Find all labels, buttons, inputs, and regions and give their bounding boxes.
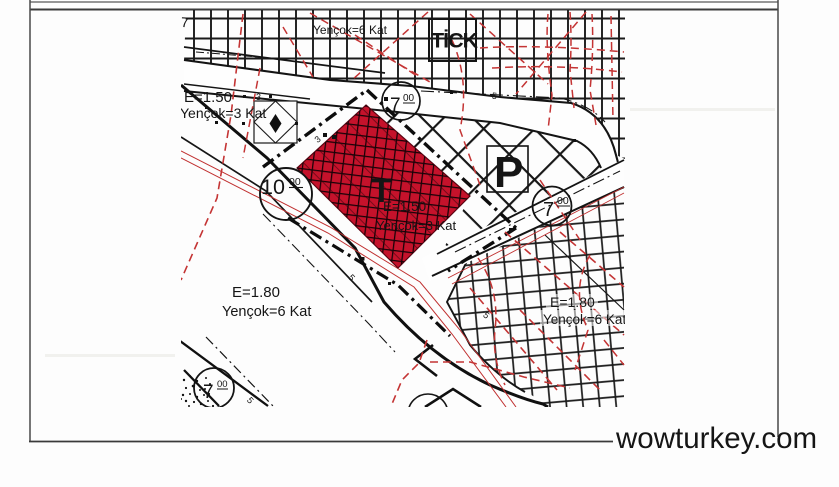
svg-text:00: 00 (557, 195, 569, 207)
svg-text:7: 7 (203, 382, 214, 403)
svg-text:E=1.50: E=1.50 (184, 89, 232, 106)
svg-text:Yençok=6 Kat: Yençok=6 Kat (543, 312, 626, 327)
svg-text:Yençok=3 Kat: Yençok=3 Kat (180, 105, 266, 121)
svg-text:7: 7 (543, 199, 554, 221)
svg-text:7: 7 (181, 14, 190, 30)
svg-text:5: 5 (491, 91, 497, 101)
svg-text:7: 7 (390, 95, 401, 116)
svg-text:Yençok=3 Kat: Yençok=3 Kat (376, 218, 457, 233)
svg-text:00: 00 (217, 379, 228, 390)
svg-text:E=1.80: E=1.80 (550, 294, 595, 310)
svg-text:Yençok=6 Kat: Yençok=6 Kat (313, 23, 388, 37)
svg-text:3: 3 (256, 92, 261, 102)
svg-text:00: 00 (289, 176, 301, 188)
svg-text:P: P (494, 148, 523, 197)
svg-text:00: 00 (403, 93, 415, 104)
svg-text:Yençok=6 Kat: Yençok=6 Kat (222, 304, 311, 320)
svg-text:10: 10 (261, 175, 285, 199)
svg-text:E=1.80: E=1.80 (232, 284, 280, 301)
svg-text:TİCK: TİCK (431, 29, 479, 53)
svg-text:wowturkey.com: wowturkey.com (615, 422, 817, 455)
svg-text:E=1.50: E=1.50 (383, 199, 426, 214)
